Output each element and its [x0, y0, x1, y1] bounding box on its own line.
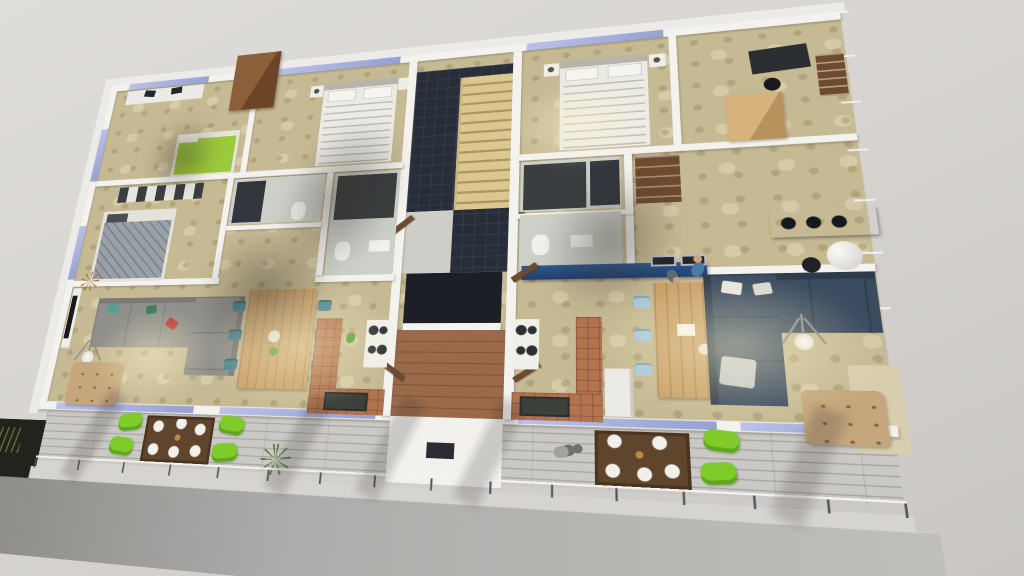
shelf-niche [815, 52, 849, 96]
core-balcony-window [426, 442, 455, 459]
dog-head [573, 444, 583, 454]
sun-patch [83, 308, 223, 409]
nightstand [649, 53, 666, 67]
balcony-table-right [594, 430, 691, 490]
cabinet-light-wood [725, 92, 786, 142]
nightstand [398, 77, 409, 90]
elevator-shaft [403, 272, 503, 329]
bed-dark-pillow [106, 213, 128, 222]
window-bar-navy [769, 206, 879, 238]
render-stage [0, 0, 1024, 576]
bed-pillow [608, 63, 642, 78]
bed-gray-blanket [92, 220, 171, 279]
floor-plan [26, 10, 930, 512]
dog [551, 441, 584, 461]
nightstand [544, 63, 559, 77]
chair-green [699, 462, 738, 485]
chair-green [211, 442, 238, 462]
sun-patch [199, 281, 401, 414]
bed-pillow [565, 67, 598, 82]
balcony-table-left [140, 415, 216, 464]
sun-patch [601, 271, 891, 429]
sun-patch [506, 75, 660, 171]
bed-gray [89, 208, 177, 282]
elevator-front-wall [402, 323, 500, 330]
kitchen-sink [519, 396, 569, 417]
